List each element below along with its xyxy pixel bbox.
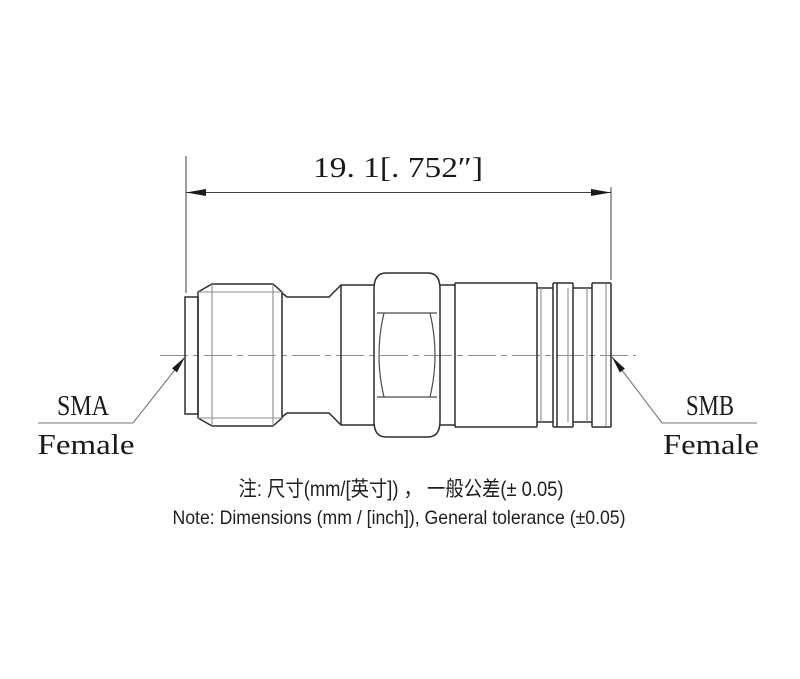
notes-block: 注: 尺寸(mm/[英寸]) ， 一般公差(± 0.05) Note: Dime… — [173, 478, 626, 529]
sma-type-label: SMA — [57, 391, 110, 422]
dimension-annotation: 19. 1[. 752″] — [186, 153, 611, 293]
dimension-arrow-left — [186, 189, 206, 196]
smb-leader-arrow — [612, 357, 625, 373]
smb-leader-line — [612, 357, 757, 423]
drawing-canvas: 19. 1[. 752″] — [0, 0, 800, 679]
sma-annotation: SMA Female — [38, 357, 186, 461]
smb-type-label: SMB — [686, 391, 734, 422]
note-english: Note: Dimensions (mm / [inch]), General … — [173, 507, 626, 529]
sma-leader-arrow — [172, 357, 185, 372]
smb-gender-label: Female — [663, 430, 759, 461]
note-chinese: 注: 尺寸(mm/[英寸]) ， 一般公差(± 0.05) — [239, 478, 564, 501]
smb-annotation: SMB Female — [612, 357, 759, 461]
sma-gender-label: Female — [38, 430, 135, 461]
technical-drawing: 19. 1[. 752″] — [0, 0, 800, 679]
dimension-label: 19. 1[. 752″] — [313, 153, 483, 184]
dimension-arrow-right — [591, 189, 611, 196]
